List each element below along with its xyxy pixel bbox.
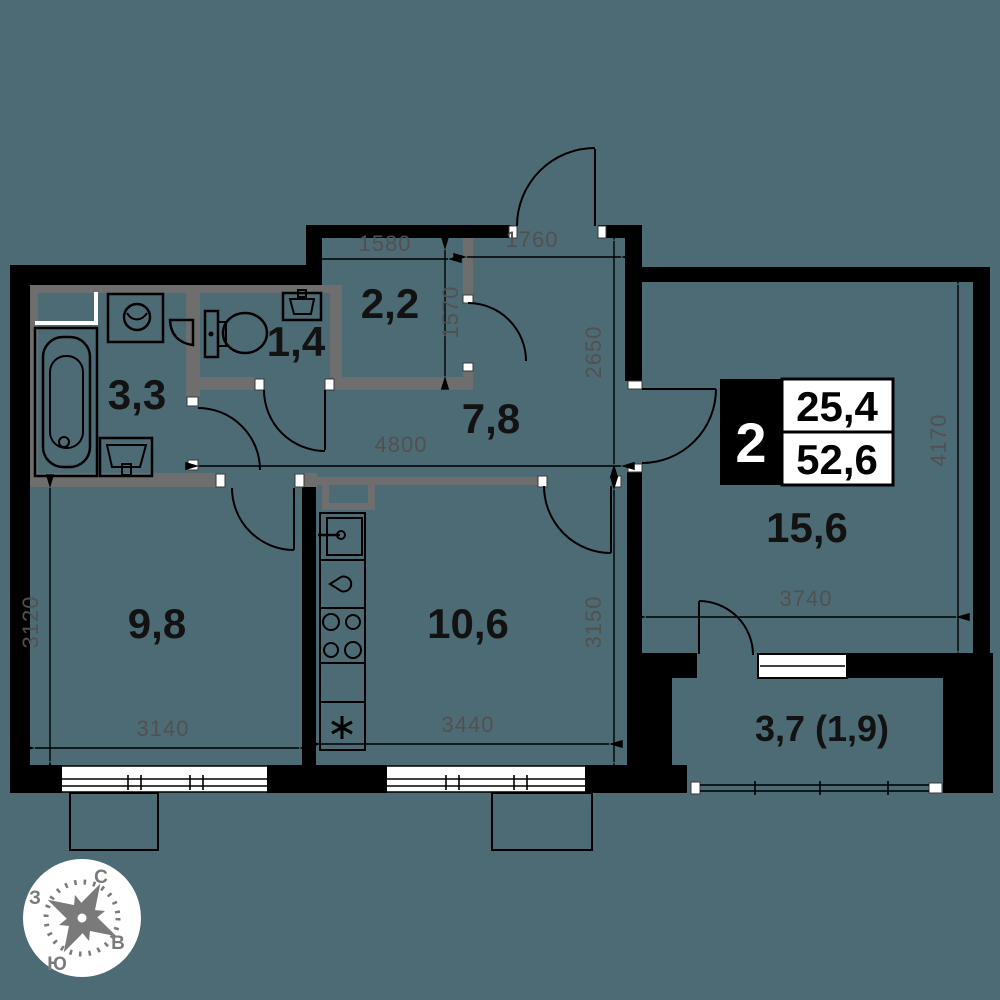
vent-duct-bottom [322,503,375,510]
partition-wardrobe-right-upper [463,238,473,295]
compass-south: Ю [47,954,67,975]
label-kitchen: 10,6 [427,600,509,647]
dim-kitchen-w: 3440 [442,712,495,737]
dim-living-w: 3740 [780,586,833,611]
dim-wardrobe-h: 1570 [438,286,463,339]
jamb [628,381,642,389]
jamb [216,474,225,487]
wall-hall-living-upper [625,227,642,381]
dim-living-h: 4170 [926,414,951,467]
dim-hall-h: 2650 [581,326,606,379]
wall-living-balcony-right [847,653,993,678]
compass-east: В [111,933,125,954]
jamb [187,397,198,406]
wall-kitchen-living [627,472,642,655]
wall-top-living [640,267,990,282]
compass-rose: С З В Ю [23,859,141,977]
label-wardrobe: 2,2 [361,280,419,327]
badge-room-count: 2 [735,411,766,474]
partition-hall-kitchen [317,477,540,485]
partition-wardrobe-bottom [334,377,473,390]
jamb [598,226,606,238]
jamb [463,363,473,371]
jamb [463,295,473,303]
badge-living-area: 25,4 [796,383,878,430]
wall-left [10,265,30,793]
jamb [628,464,642,472]
label-balcony: 3,7 (1,9) [755,708,889,749]
balcony-window-unit [758,654,847,678]
wall-bottom-a [10,765,62,793]
bedroom-window [62,766,267,792]
wall-living-balcony-left [642,653,697,678]
partition-wardrobe-right-lower [463,371,473,390]
label-bathroom: 3,3 [108,371,166,418]
label-wc: 1,4 [267,318,326,365]
badge-total-area: 52,6 [796,436,878,483]
dim-hall-w: 4800 [375,432,428,457]
dim-kitchen-h: 3150 [581,596,606,649]
floorplan-canvas: 1580 1760 1570 2650 4800 4170 3740 3150 … [0,0,1000,1000]
dim-wardrobe-w: 1580 [359,231,412,256]
jamb [612,476,621,487]
floorplan-svg: 1580 1760 1570 2650 4800 4170 3740 3150 … [0,0,1000,1000]
dim-entry-w: 1760 [506,227,559,252]
partition-wc-bottom [197,377,255,390]
wall-bedroom-kitchen [302,487,316,765]
compass-north: С [94,867,108,888]
wall-balcony-right [943,678,993,793]
jamb [295,474,304,487]
wall-top-left [10,265,308,285]
wall-bottom-c [585,765,687,793]
jamb [538,476,547,487]
jamb [325,379,334,390]
jamb [188,460,198,470]
jamb [255,379,264,390]
wall-bottom-b [267,765,387,793]
wall-right [973,267,990,657]
dim-bedroom-w: 3140 [137,716,190,741]
label-hall: 7,8 [462,395,520,442]
dim-bedroom-h: 3120 [18,596,43,649]
partition-wc-right [330,293,342,377]
label-living: 15,6 [766,504,848,551]
compass-west: З [29,888,41,909]
label-bedroom: 9,8 [128,600,186,647]
kitchen-window [387,766,585,792]
apartment-badge: 2 25,4 52,6 [720,379,893,485]
